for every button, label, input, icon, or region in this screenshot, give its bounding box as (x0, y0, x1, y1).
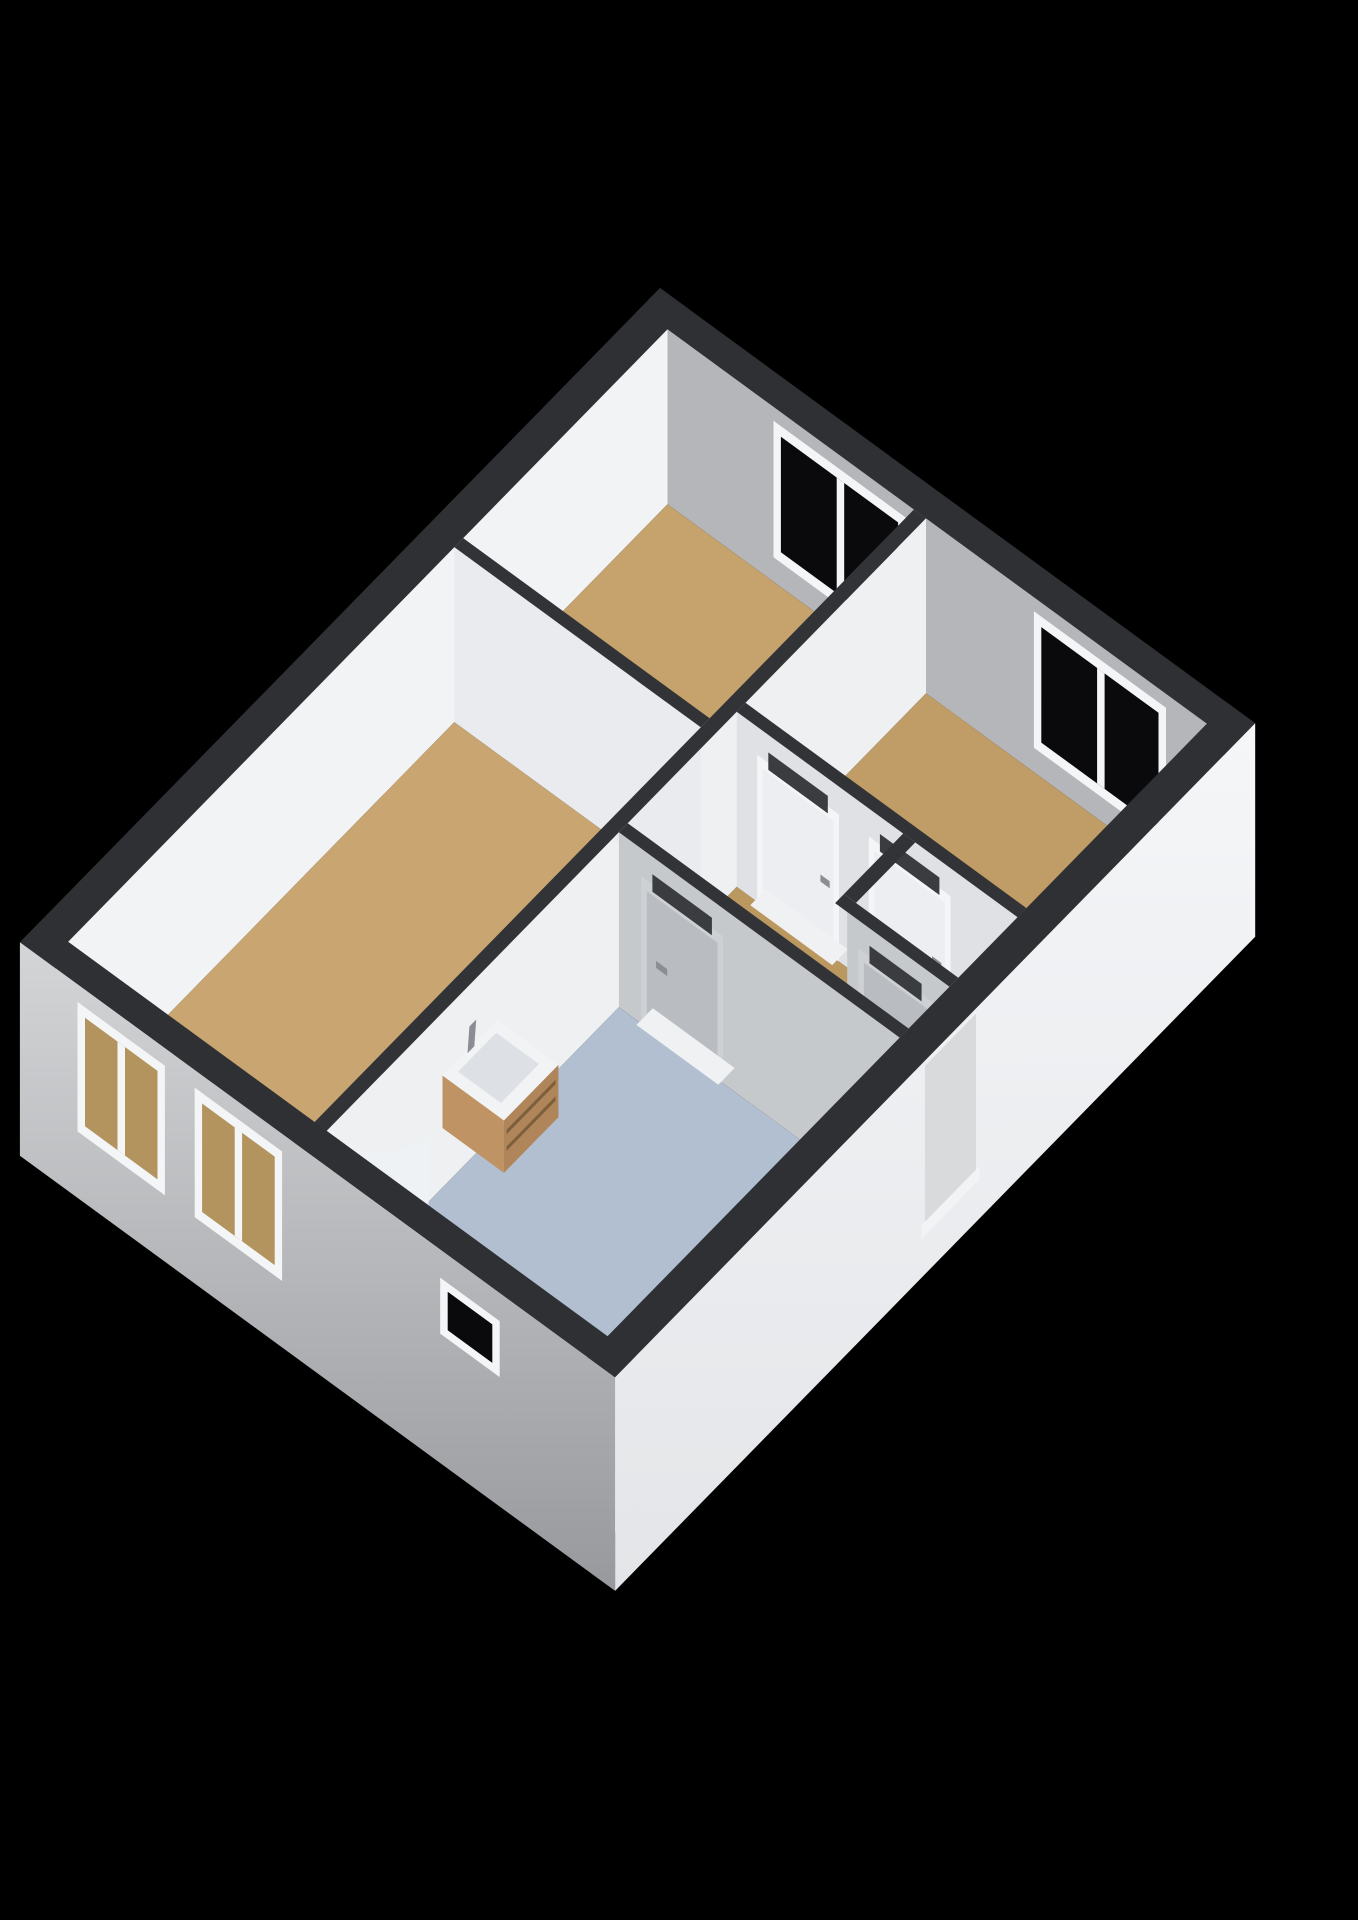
floorplan-3d-viewport[interactable] (0, 0, 1358, 1920)
window-mullion-middle-bedroom (837, 478, 845, 599)
window-mullion-living-2 (235, 1127, 242, 1241)
floorplan-3d-render (0, 0, 1358, 1920)
window-mullion-right-bedroom (1097, 668, 1105, 789)
window-mullion-living-1 (118, 1042, 126, 1156)
